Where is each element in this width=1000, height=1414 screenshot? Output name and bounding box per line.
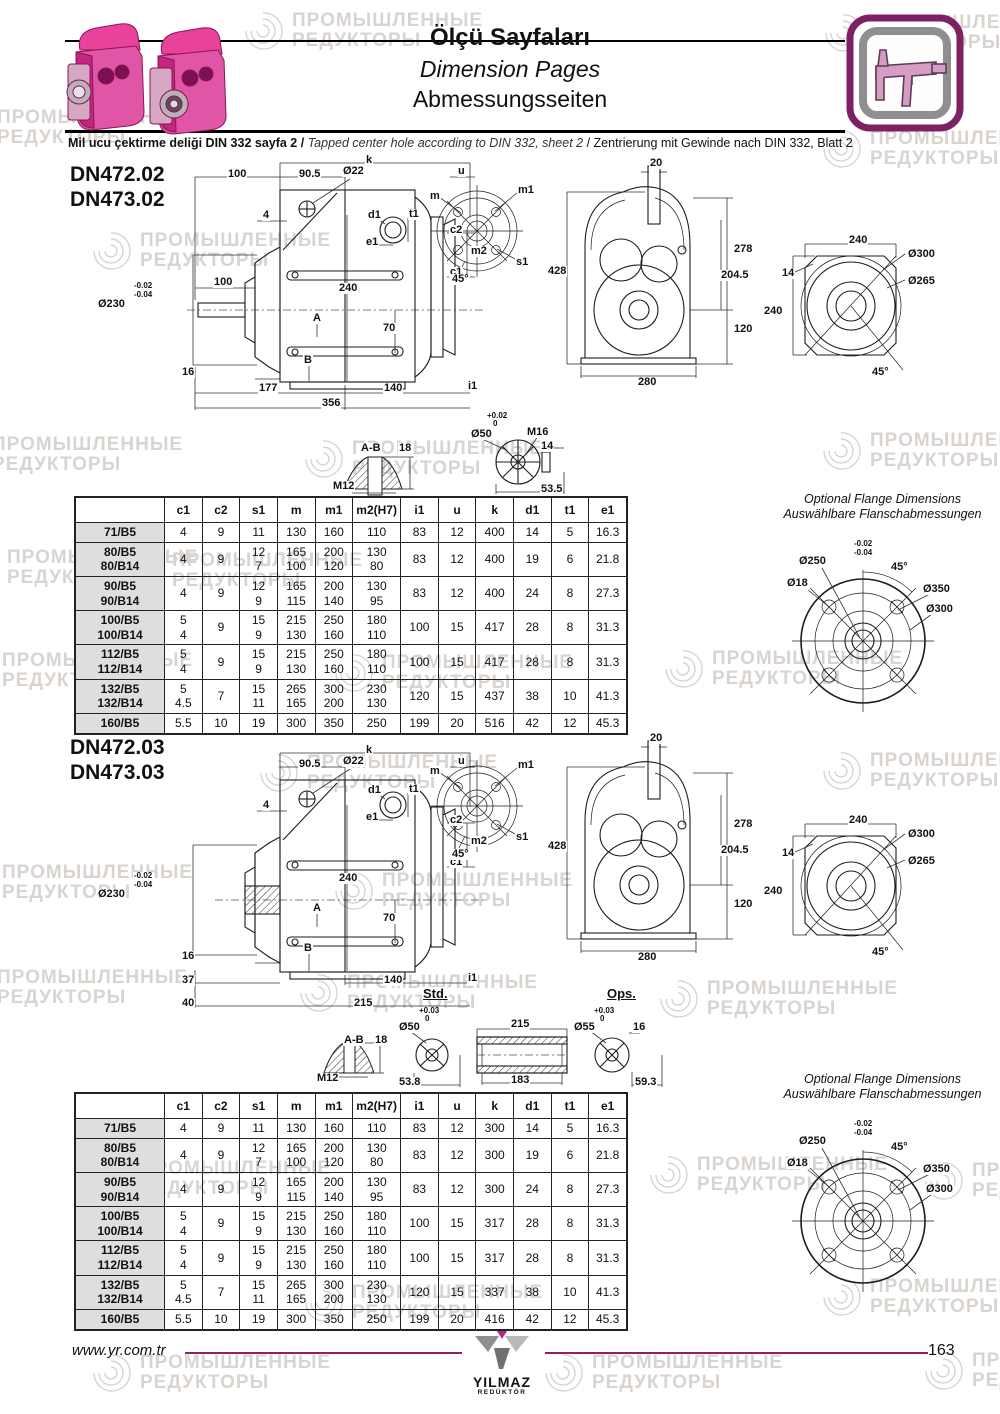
dim-cell: 5 4 <box>165 645 203 679</box>
page-title-de: Abmessungsseiten <box>310 86 710 113</box>
dimension-table: c1c2s1mm1m2(H7)i1ukd1t1e171/B54911130160… <box>75 497 627 734</box>
dim-label: -0.04 <box>133 291 153 299</box>
dim-label: 53.8 <box>398 1077 421 1088</box>
dim-label: m1 <box>517 760 535 771</box>
dim-label: 45° <box>871 367 890 378</box>
dim-label: 356 <box>321 398 341 409</box>
dim-cell: 250 160 <box>315 1207 353 1241</box>
table-row: 71/B54911130160110831240014516.3 <box>76 523 627 543</box>
dim-label: +0.02 <box>486 412 508 420</box>
col-header <box>76 498 165 523</box>
dim-cell: 9 <box>202 523 240 543</box>
dim-cell: 5 4 <box>165 1207 203 1241</box>
col-header: k <box>476 1094 514 1119</box>
dim-cell: 24 <box>514 1172 552 1206</box>
dim-cell: 250 <box>353 713 401 733</box>
dim-cell: 20 <box>438 713 476 733</box>
col-header: s1 <box>240 498 278 523</box>
dim-cell: 15 11 <box>240 1275 278 1309</box>
dim-cell: 21.8 <box>589 542 627 576</box>
dim-label: e1 <box>365 812 379 823</box>
dim-cell: 9 <box>202 1138 240 1172</box>
dim-label: Ø18 <box>786 1158 809 1169</box>
website-url[interactable]: www.yr.com.tr <box>72 1342 166 1359</box>
output-flange-view-1: 240Ø30014Ø26524045° <box>755 230 970 380</box>
col-header: t1 <box>551 498 589 523</box>
row-label: 112/B5 112/B14 <box>76 1241 165 1275</box>
dim-cell: 400 <box>476 576 514 610</box>
dim-label: 177 <box>258 383 278 394</box>
dim-label: -0.02 <box>853 1120 873 1128</box>
dim-cell: 9 <box>202 576 240 610</box>
dim-cell: 9 <box>202 1207 240 1241</box>
dim-label: 0 <box>599 1015 605 1023</box>
dim-cell: 31.3 <box>589 1241 627 1275</box>
dim-cell: 100 <box>401 1241 439 1275</box>
dim-cell: 250 <box>353 1309 401 1329</box>
din-note-de: / Zentrierung mit Gewinde nach DIN 332, … <box>587 136 853 150</box>
dim-label: +0.03 <box>593 1007 615 1015</box>
dim-label: m2 <box>470 246 488 257</box>
dim-cell: 199 <box>401 1309 439 1329</box>
row-label: 100/B5 100/B14 <box>76 1207 165 1241</box>
dim-cell: 250 160 <box>315 611 353 645</box>
dim-cell: 19 <box>240 1309 278 1329</box>
col-header: i1 <box>401 498 439 523</box>
dim-label: 37 <box>181 975 195 986</box>
dim-cell: 83 <box>401 576 439 610</box>
dim-label: m <box>429 191 441 202</box>
brand-logo: YILMAZ REDÜKTÖR <box>462 1330 542 1397</box>
dim-cell: 165 100 <box>277 542 315 576</box>
input-shaft-detail-2: d1t1e1 <box>365 775 425 830</box>
dim-cell: 120 <box>401 1275 439 1309</box>
dim-label: 90.5 <box>298 169 321 180</box>
table-row: 160/B55.5101930035025019920416421245.3 <box>76 1309 627 1329</box>
table-row: 112/B5 112/B145 4915 9215 130250 160180 … <box>76 645 627 679</box>
dim-cell: 4 <box>165 576 203 610</box>
dim-label: m1 <box>517 185 535 196</box>
table-row: 90/B5 90/B144912 9165 115200 140130 9583… <box>76 576 627 610</box>
dim-label: 4 <box>262 800 270 811</box>
dim-cell: 100 <box>401 1207 439 1241</box>
dim-cell: 120 <box>401 679 439 713</box>
dim-label: 18 <box>374 1035 388 1046</box>
dim-cell: 9 <box>202 611 240 645</box>
dim-cell: 11 <box>240 523 278 543</box>
dim-label: -0.02 <box>133 872 153 880</box>
dim-cell: 516 <box>476 713 514 733</box>
dim-cell: 300 <box>476 1138 514 1172</box>
col-header: c1 <box>165 1094 203 1119</box>
dim-cell: 317 <box>476 1207 514 1241</box>
dim-label: 45° <box>451 274 470 285</box>
dim-label: 16 <box>181 367 195 378</box>
dim-cell: 230 130 <box>353 679 401 713</box>
dim-label: 240 <box>338 283 358 294</box>
dim-cell: 5 4.5 <box>165 679 203 713</box>
dim-cell: 5 <box>551 1119 589 1139</box>
dim-label: d1 <box>367 785 382 796</box>
dim-label: t1 <box>408 209 420 220</box>
dim-cell: 9 <box>202 542 240 576</box>
front-view-drawing-1: 20428278204.5120280 <box>545 158 780 390</box>
dim-cell: 12 <box>438 1172 476 1206</box>
page-title-en: Dimension Pages <box>310 56 710 83</box>
row-label: 80/B5 80/B14 <box>76 542 165 576</box>
dim-label: Ø300 <box>907 829 936 840</box>
dim-label: c2 <box>449 225 463 236</box>
dim-cell: 100 <box>401 645 439 679</box>
dim-cell: 12 <box>551 713 589 733</box>
dim-label: Ø265 <box>907 856 936 867</box>
row-label: 80/B5 80/B14 <box>76 1138 165 1172</box>
col-header: u <box>438 498 476 523</box>
col-header: d1 <box>514 498 552 523</box>
col-header: m <box>277 498 315 523</box>
dim-cell: 15 <box>438 1275 476 1309</box>
dim-cell: 28 <box>514 611 552 645</box>
dim-cell: 5.5 <box>165 713 203 733</box>
table-row: 132/B5 132/B145 4.5715 11265 165300 2002… <box>76 1275 627 1309</box>
dim-label: t1 <box>408 784 420 795</box>
dim-cell: 180 110 <box>353 1207 401 1241</box>
dim-label: d1 <box>367 210 382 221</box>
dim-cell: 7 <box>202 679 240 713</box>
dim-cell: 19 <box>240 713 278 733</box>
brand-name: YILMAZ <box>462 1375 542 1389</box>
dim-cell: 215 130 <box>277 645 315 679</box>
dim-label: 70 <box>382 913 396 924</box>
dim-cell: 45.3 <box>589 713 627 733</box>
dim-cell: 4 <box>165 542 203 576</box>
dim-cell: 12 <box>438 576 476 610</box>
table-row: 100/B5 100/B145 4915 9215 130250 160180 … <box>76 1207 627 1241</box>
footer-rule-right <box>545 1352 928 1354</box>
dim-label: 59.3 <box>634 1077 657 1088</box>
dim-cell: 14 <box>514 1119 552 1139</box>
dim-label: A-B <box>360 443 382 454</box>
optional-flange-1: Optional Flange Dimensions Auswählbare F… <box>770 492 995 732</box>
dim-cell: 165 100 <box>277 1138 315 1172</box>
dim-cell: 130 95 <box>353 1172 401 1206</box>
dim-label: s1 <box>515 257 529 268</box>
din-note-tr: Mil ucu çektirme deliği DIN 332 sayfa 2 … <box>68 136 308 150</box>
table-row: 100/B5 100/B145 4915 9215 130250 160180 … <box>76 611 627 645</box>
row-label: 90/B5 90/B14 <box>76 576 165 610</box>
col-header: d1 <box>514 1094 552 1119</box>
dim-label: 204.5 <box>720 845 750 856</box>
dim-label: Ø250 <box>798 556 827 567</box>
col-header: m2(H7) <box>353 1094 401 1119</box>
optional-flange-title-en: Optional Flange Dimensions <box>770 492 995 507</box>
dimension-table: c1c2s1mm1m2(H7)i1ukd1t1e171/B54911130160… <box>75 1093 627 1330</box>
dim-label: 20 <box>649 158 663 169</box>
dim-label: i1 <box>467 973 478 984</box>
dim-cell: 200 120 <box>315 542 353 576</box>
dim-cell: 6 <box>551 1138 589 1172</box>
dim-cell: 317 <box>476 1241 514 1275</box>
table-row: 71/B54911130160110831230014516.3 <box>76 1119 627 1139</box>
dim-label: 428 <box>547 266 567 277</box>
table-row: 132/B5 132/B145 4.5715 11265 165300 2002… <box>76 679 627 713</box>
dim-cell: 5.5 <box>165 1309 203 1329</box>
dim-label: 53.5 <box>540 484 563 495</box>
dim-cell: 12 9 <box>240 1172 278 1206</box>
shaft-end-detail-1: +0.020Ø50M161453.5 <box>460 412 575 497</box>
row-label: 132/B5 132/B14 <box>76 1275 165 1309</box>
dim-cell: 16.3 <box>589 523 627 543</box>
dim-cell: 250 160 <box>315 645 353 679</box>
dim-label: Ø300 <box>925 604 954 615</box>
dim-label: -0.04 <box>853 1129 873 1137</box>
dim-label: Ø18 <box>786 578 809 589</box>
dim-cell: 10 <box>202 1309 240 1329</box>
col-header: t1 <box>551 1094 589 1119</box>
dim-label: Ø230 <box>97 889 126 900</box>
dim-cell: 19 <box>514 1138 552 1172</box>
dim-cell: 15 9 <box>240 611 278 645</box>
dim-cell: 265 165 <box>277 1275 315 1309</box>
dim-cell: 215 130 <box>277 611 315 645</box>
optional-flange-2: Optional Flange Dimensions Auswählbare F… <box>770 1072 995 1322</box>
dim-label: 280 <box>637 952 657 963</box>
dim-cell: 38 <box>514 679 552 713</box>
dim-label: Std. <box>422 987 449 1000</box>
footer-rule-left <box>185 1352 462 1354</box>
key-detail-ab-1: A-B18M12 <box>330 415 430 497</box>
dim-label: 240 <box>848 235 868 246</box>
dim-cell: 83 <box>401 1138 439 1172</box>
catalog-page: ПРОМЫШЛЕННЫЕРЕДУКТОРЫПРОМЫШЛЕННЫЕРЕДУКТО… <box>0 0 1000 1414</box>
dim-cell: 10 <box>551 1275 589 1309</box>
dim-cell: 11 <box>240 1119 278 1139</box>
dim-cell: 15 <box>438 645 476 679</box>
dim-cell: 45.3 <box>589 1309 627 1329</box>
table-row: 90/B5 90/B144912 9165 115200 140130 9583… <box>76 1172 627 1206</box>
dim-cell: 15 11 <box>240 679 278 713</box>
dim-label: 14 <box>781 848 795 859</box>
dim-cell: 41.3 <box>589 1275 627 1309</box>
dim-cell: 20 <box>438 1309 476 1329</box>
output-flange-view-2: 240Ø30014Ø26524045° <box>755 810 970 960</box>
dim-cell: 200 140 <box>315 1172 353 1206</box>
table-row: 112/B5 112/B145 4915 9215 130250 160180 … <box>76 1241 627 1275</box>
dim-label: -0.04 <box>853 549 873 557</box>
dim-cell: 6 <box>551 542 589 576</box>
dim-label: B <box>303 355 313 366</box>
dim-cell: 21.8 <box>589 1138 627 1172</box>
dim-label: Ø55 <box>573 1022 596 1033</box>
dim-label: 204.5 <box>720 270 750 281</box>
col-header: u <box>438 1094 476 1119</box>
dim-label: Ø350 <box>922 1164 951 1175</box>
dim-cell: 300 200 <box>315 679 353 713</box>
dim-label: A-B <box>343 1035 365 1046</box>
dim-cell: 28 <box>514 1241 552 1275</box>
dim-cell: 350 <box>315 713 353 733</box>
product-photo-gearboxes <box>62 12 252 137</box>
dim-cell: 437 <box>476 679 514 713</box>
dim-label: u <box>457 166 466 177</box>
col-header: m <box>277 1094 315 1119</box>
dim-cell: 19 <box>514 542 552 576</box>
dim-label: k <box>365 745 373 756</box>
din-note: Mil ucu çektirme deliği DIN 332 sayfa 2 … <box>68 136 853 150</box>
table-row: 80/B5 80/B144912 7165 100200 120130 8083… <box>76 542 627 576</box>
dim-label: c2 <box>449 815 463 826</box>
dim-label: 100 <box>227 169 247 180</box>
dim-label: Ø300 <box>925 1184 954 1195</box>
dimension-table-1: c1c2s1mm1m2(H7)i1ukd1t1e171/B54911130160… <box>75 497 627 734</box>
dim-cell: 7 <box>202 1275 240 1309</box>
dimension-table-2: c1c2s1mm1m2(H7)i1ukd1t1e171/B54911130160… <box>75 1093 627 1330</box>
dim-label: 215 <box>510 1019 530 1030</box>
dim-cell: 9 <box>202 645 240 679</box>
dim-label: 18 <box>398 443 412 454</box>
dim-label: k <box>365 155 373 166</box>
dim-label: A <box>312 903 322 914</box>
dim-label: 40 <box>181 998 195 1009</box>
dim-cell: 110 <box>353 523 401 543</box>
dim-cell: 42 <box>514 1309 552 1329</box>
dim-cell: 4 <box>165 1138 203 1172</box>
dim-cell: 15 <box>438 1241 476 1275</box>
dim-cell: 417 <box>476 645 514 679</box>
dim-cell: 14 <box>514 523 552 543</box>
dim-cell: 12 <box>551 1309 589 1329</box>
dim-cell: 300 <box>476 1172 514 1206</box>
dim-label: Ø350 <box>922 584 951 595</box>
dim-cell: 38 <box>514 1275 552 1309</box>
dim-cell: 4 <box>165 523 203 543</box>
dim-label: 14 <box>781 268 795 279</box>
dim-cell: 180 110 <box>353 645 401 679</box>
row-label: 132/B5 132/B14 <box>76 679 165 713</box>
dim-cell: 28 <box>514 1207 552 1241</box>
dim-label: 45° <box>871 947 890 958</box>
dim-label: Ø230 <box>97 299 126 310</box>
dim-label: 0 <box>492 420 498 428</box>
dim-cell: 8 <box>551 611 589 645</box>
dim-label: 280 <box>637 377 657 388</box>
dim-label: Ø265 <box>907 276 936 287</box>
dim-cell: 12 9 <box>240 576 278 610</box>
row-label: 100/B5 100/B14 <box>76 611 165 645</box>
dim-cell: 83 <box>401 542 439 576</box>
dim-label: -0.04 <box>133 881 153 889</box>
dim-label: 16 <box>181 951 195 962</box>
dim-cell: 15 <box>438 679 476 713</box>
dim-label: 16 <box>632 1022 646 1033</box>
dim-cell: 4 <box>165 1172 203 1206</box>
page-title: Ölçü Sayfaları <box>310 24 710 52</box>
dim-cell: 15 <box>438 611 476 645</box>
dim-cell: 400 <box>476 523 514 543</box>
dim-label: M12 <box>332 481 355 492</box>
dim-cell: 9 <box>202 1119 240 1139</box>
col-header: m2(H7) <box>353 498 401 523</box>
dim-label: Ø50 <box>398 1022 421 1033</box>
dim-label: 4 <box>262 210 270 221</box>
dim-label: -0.02 <box>133 282 153 290</box>
dim-label: +0.03 <box>418 1007 440 1015</box>
dim-cell: 27.3 <box>589 1172 627 1206</box>
col-header: c1 <box>165 498 203 523</box>
dim-cell: 337 <box>476 1275 514 1309</box>
input-shaft-detail-1: d1t1e1 <box>365 200 425 255</box>
col-header: m1 <box>315 498 353 523</box>
dim-label: 45° <box>890 1142 909 1153</box>
dim-cell: 300 <box>476 1119 514 1139</box>
row-label: 160/B5 <box>76 713 165 733</box>
dim-cell: 12 <box>438 523 476 543</box>
dim-label: Ø250 <box>798 1136 827 1147</box>
dim-cell: 9 <box>202 1241 240 1275</box>
dim-label: 90.5 <box>298 759 321 770</box>
dim-cell: 83 <box>401 523 439 543</box>
dim-cell: 83 <box>401 1119 439 1139</box>
yilmaz-logo-icon <box>469 1330 535 1370</box>
dim-label: Ø300 <box>907 249 936 260</box>
front-view-drawing-2: 20428278204.5120280 <box>545 733 780 965</box>
dim-label: Ops. <box>606 987 637 1000</box>
dim-cell: 12 <box>438 542 476 576</box>
dim-cell: 130 <box>277 1119 315 1139</box>
col-header: c2 <box>202 1094 240 1119</box>
optional-flange-title-en: Optional Flange Dimensions <box>770 1072 995 1087</box>
dim-cell: 160 <box>315 523 353 543</box>
dim-label: 0 <box>424 1015 430 1023</box>
dim-label: 20 <box>649 733 663 744</box>
page-number: 163 <box>928 1342 955 1360</box>
dim-cell: 180 110 <box>353 1241 401 1275</box>
table-row: 160/B55.5101930035025019920516421245.3 <box>76 713 627 733</box>
dim-cell: 12 7 <box>240 542 278 576</box>
dim-label: 14 <box>540 441 554 452</box>
dim-label: 45° <box>890 562 909 573</box>
dim-cell: 41.3 <box>589 679 627 713</box>
dim-cell: 180 110 <box>353 611 401 645</box>
dim-label: Ø22 <box>342 166 365 177</box>
dim-label: 183 <box>510 1075 530 1086</box>
row-label: 90/B5 90/B14 <box>76 1172 165 1206</box>
dim-cell: 15 <box>438 1207 476 1241</box>
dim-cell: 417 <box>476 611 514 645</box>
dim-label: 140 <box>383 383 403 394</box>
dim-label: s1 <box>515 832 529 843</box>
dim-label: 140 <box>383 975 403 986</box>
page-title-block: Ölçü Sayfaları Dimension Pages Abmessung… <box>310 24 710 113</box>
dim-label: m2 <box>470 836 488 847</box>
dim-cell: 300 200 <box>315 1275 353 1309</box>
dim-cell: 5 4 <box>165 1241 203 1275</box>
dim-cell: 300 <box>277 713 315 733</box>
dim-label: 240 <box>763 306 783 317</box>
dim-label: -0.02 <box>853 540 873 548</box>
motor-flange-view-1: mm1s145° <box>425 175 535 287</box>
dim-cell: 130 95 <box>353 576 401 610</box>
dim-label: Ø22 <box>342 756 365 767</box>
dim-cell: 110 <box>353 1119 401 1139</box>
dim-label: 120 <box>733 899 753 910</box>
row-label: 71/B5 <box>76 523 165 543</box>
dim-cell: 200 120 <box>315 1138 353 1172</box>
dim-cell: 8 <box>551 1172 589 1206</box>
dim-cell: 15 9 <box>240 1241 278 1275</box>
dim-label: 240 <box>338 873 358 884</box>
col-header: i1 <box>401 1094 439 1119</box>
